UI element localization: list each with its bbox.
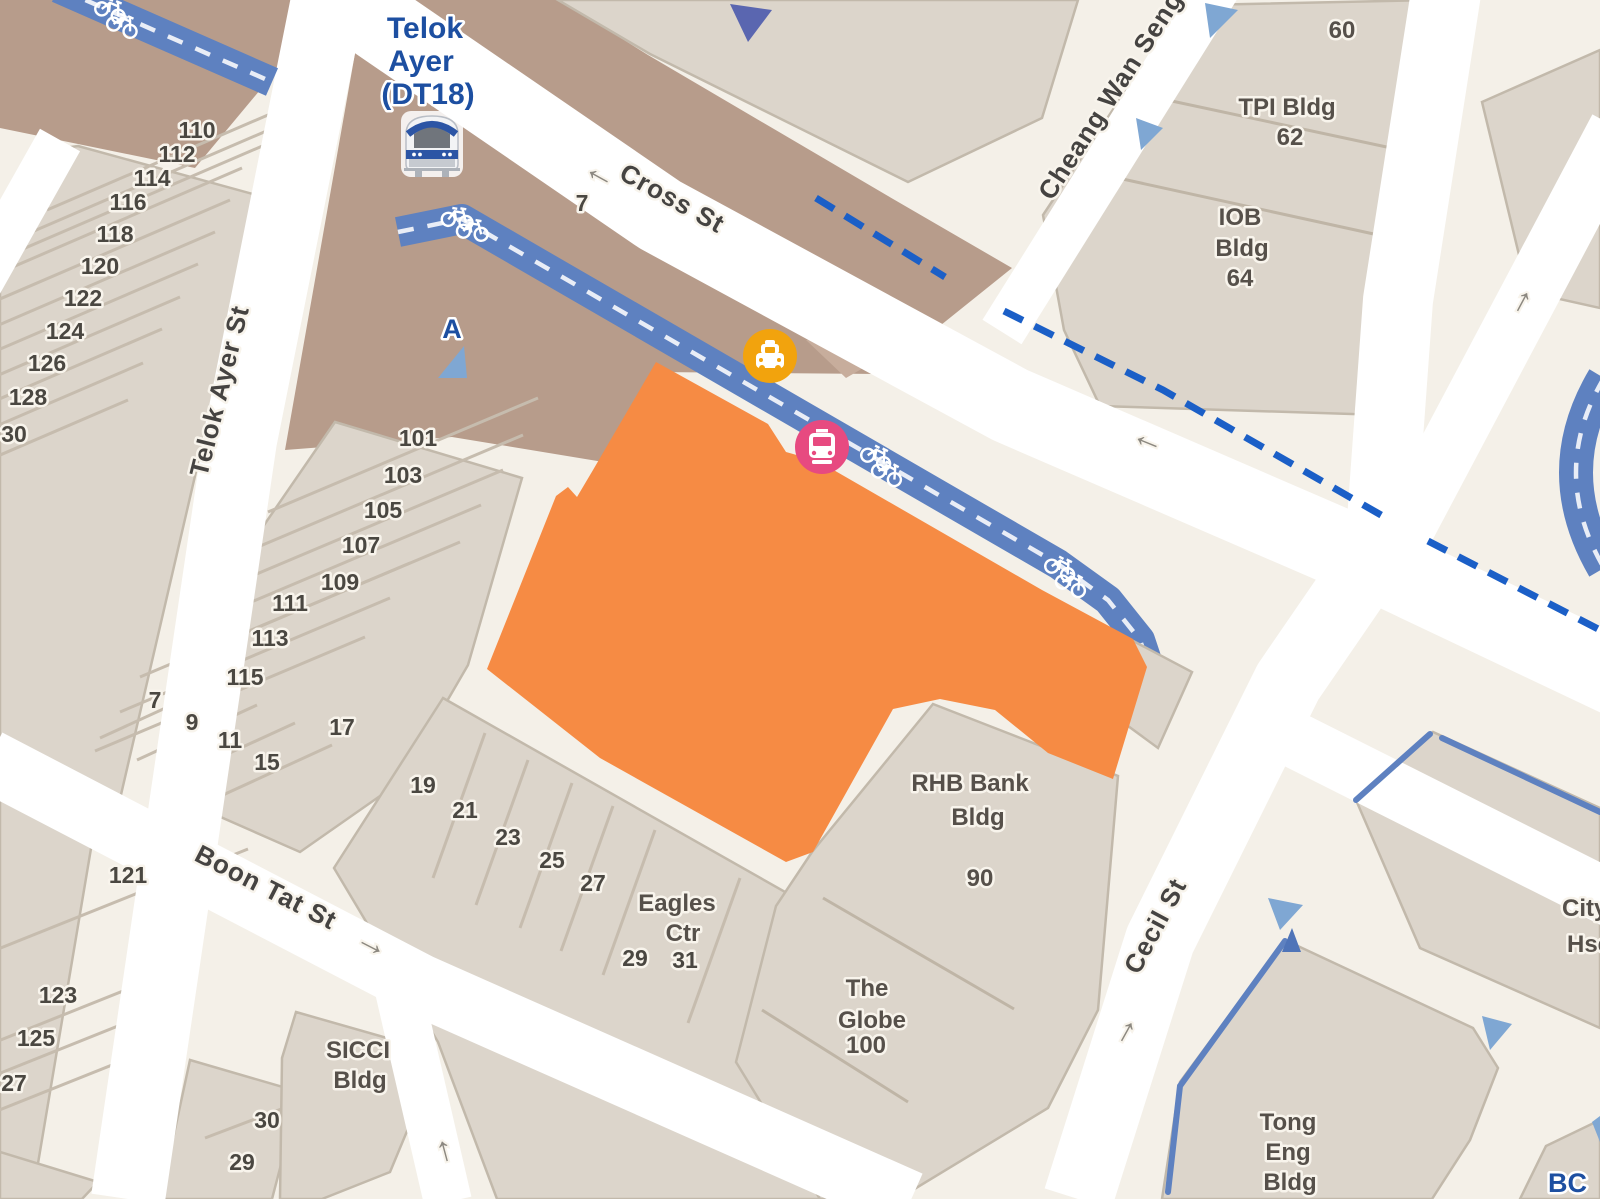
svg-text:11: 11 bbox=[218, 727, 243, 753]
building-label-globe: The bbox=[846, 975, 889, 1002]
svg-text:Bldg: Bldg bbox=[1215, 235, 1268, 262]
svg-text:125: 125 bbox=[17, 1025, 56, 1051]
svg-text:Bldg: Bldg bbox=[333, 1067, 386, 1094]
building-label-rhb: RHB Bank bbox=[911, 770, 1029, 797]
partial-label-bottom-right: BC bbox=[1548, 1168, 1587, 1198]
svg-text:101: 101 bbox=[399, 425, 438, 451]
svg-text:62: 62 bbox=[1277, 124, 1304, 151]
building-label-iob: IOB bbox=[1219, 204, 1262, 231]
map-canvas[interactable]: ← ← → ↑ ↑ ↑ A bbox=[0, 0, 1600, 1199]
svg-text:15: 15 bbox=[254, 749, 280, 775]
svg-text:113: 113 bbox=[251, 625, 288, 651]
svg-text:A: A bbox=[442, 314, 462, 344]
svg-text:17: 17 bbox=[329, 714, 355, 740]
svg-text:29: 29 bbox=[229, 1149, 255, 1175]
building-label-city-hse: City bbox=[1562, 895, 1600, 922]
svg-text:25: 25 bbox=[539, 847, 565, 873]
svg-text:118: 118 bbox=[96, 221, 133, 247]
svg-text:123: 123 bbox=[39, 982, 77, 1008]
svg-text:112: 112 bbox=[158, 141, 195, 167]
svg-text:121: 121 bbox=[109, 862, 148, 888]
svg-text:29: 29 bbox=[622, 945, 648, 971]
svg-text:Bldg: Bldg bbox=[951, 804, 1004, 831]
svg-text:19: 19 bbox=[410, 772, 436, 798]
svg-text:7: 7 bbox=[149, 687, 162, 713]
svg-text:Eng: Eng bbox=[1265, 1139, 1310, 1166]
svg-text:114: 114 bbox=[133, 165, 170, 191]
svg-text:124: 124 bbox=[46, 318, 85, 344]
svg-text:115: 115 bbox=[226, 664, 263, 690]
svg-text:64: 64 bbox=[1227, 265, 1254, 292]
svg-text:110: 110 bbox=[178, 117, 215, 143]
svg-text:90: 90 bbox=[967, 865, 994, 892]
building-label-tpi: TPI Bldg bbox=[1238, 94, 1335, 121]
svg-text:30: 30 bbox=[254, 1107, 280, 1133]
svg-text:Telok: Telok bbox=[387, 12, 463, 45]
svg-text:27: 27 bbox=[580, 870, 606, 896]
svg-text:105: 105 bbox=[364, 497, 403, 523]
svg-text:31: 31 bbox=[672, 947, 698, 973]
svg-text:100: 100 bbox=[846, 1032, 886, 1059]
taxi-stand-icon[interactable] bbox=[743, 329, 797, 383]
svg-text:Bldg: Bldg bbox=[1263, 1169, 1316, 1196]
building-label-60: 60 bbox=[1329, 17, 1356, 44]
mrt-station-icon[interactable] bbox=[401, 111, 463, 177]
svg-text:116: 116 bbox=[109, 189, 146, 215]
svg-text:Ctr: Ctr bbox=[666, 920, 701, 947]
svg-text:103: 103 bbox=[384, 462, 422, 488]
svg-text:9: 9 bbox=[186, 709, 199, 735]
svg-text:120: 120 bbox=[81, 253, 119, 279]
svg-text:23: 23 bbox=[495, 824, 521, 850]
cross-st-number: 7 bbox=[576, 190, 589, 216]
svg-text:128: 128 bbox=[9, 384, 48, 410]
svg-text:27: 27 bbox=[1, 1070, 27, 1096]
svg-text:21: 21 bbox=[452, 797, 478, 823]
svg-text:(DT18): (DT18) bbox=[381, 78, 474, 111]
building-label-sicci: SICCI bbox=[326, 1037, 390, 1064]
svg-text:30: 30 bbox=[1, 421, 27, 447]
svg-text:107: 107 bbox=[342, 532, 380, 558]
building-label-eagles: Eagles bbox=[638, 890, 715, 917]
svg-text:Globe: Globe bbox=[838, 1007, 906, 1034]
svg-text:126: 126 bbox=[28, 350, 66, 376]
svg-text:122: 122 bbox=[64, 285, 102, 311]
svg-text:Ayer: Ayer bbox=[388, 45, 454, 78]
building-label-tong-eng: Tong bbox=[1260, 1109, 1317, 1136]
svg-text:109: 109 bbox=[321, 569, 359, 595]
bus-stop-icon[interactable] bbox=[795, 420, 849, 474]
svg-text:111: 111 bbox=[272, 590, 308, 616]
svg-text:Hse: Hse bbox=[1567, 931, 1600, 958]
